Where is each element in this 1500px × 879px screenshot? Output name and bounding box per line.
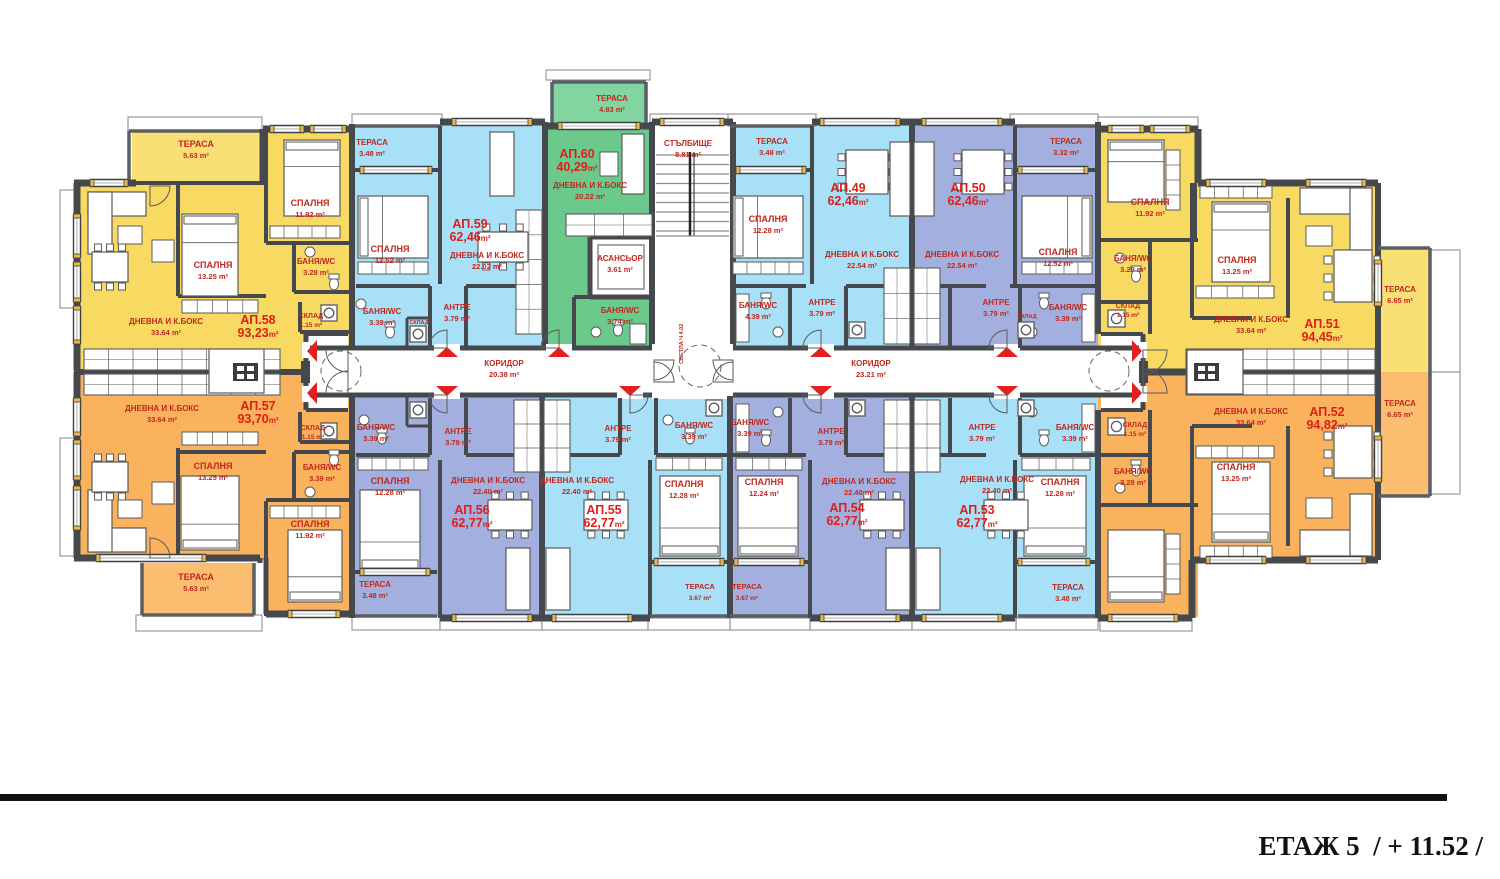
svg-text:3.79 m²: 3.79 m² [818,438,844,447]
svg-text:БАНЯ/WC: БАНЯ/WC [731,418,770,427]
svg-text:5.63 m²: 5.63 m² [183,584,209,593]
svg-text:СПАЛНЯ: СПАЛНЯ [194,461,233,471]
svg-text:ДНЕВНА И К.БОКС: ДНЕВНА И К.БОКС [553,181,627,190]
svg-text:12.24 m²: 12.24 m² [749,489,780,498]
svg-text:ДНЕВНА И К.БОКС: ДНЕВНА И К.БОКС [960,475,1034,484]
svg-text:3.28 m²: 3.28 m² [1120,265,1146,274]
svg-text:БАНЯ/WC: БАНЯ/WC [1049,303,1088,312]
svg-text:ДНЕВНА И К.БОКС: ДНЕВНА И К.БОКС [822,477,896,486]
svg-text:БАНЯ/WC: БАНЯ/WC [357,423,396,432]
svg-text:3.48 m²: 3.48 m² [359,149,385,158]
svg-text:ДНЕВНА И К.БОКС: ДНЕВНА И К.БОКС [540,476,614,485]
svg-text:ТЕРАСА: ТЕРАСА [356,138,388,147]
svg-text:33.64 m²: 33.64 m² [1236,326,1267,335]
svg-text:20.38 m²: 20.38 m² [489,370,520,379]
svg-text:ТЕРАСА: ТЕРАСА [1384,399,1416,408]
svg-text:3.39 m²: 3.39 m² [737,429,763,438]
svg-text:АНТРЕ: АНТРЕ [808,298,836,307]
svg-text:СКЛАД: СКЛАД [301,425,326,432]
svg-text:АП.51: АП.51 [1304,317,1339,331]
svg-text:АП.55: АП.55 [586,503,621,517]
svg-text:СВЕТЛА Ч 4.02: СВЕТЛА Ч 4.02 [679,324,685,364]
svg-text:3.39 m²: 3.39 m² [1062,434,1088,443]
svg-text:АНТРЕ: АНТРЕ [982,298,1010,307]
svg-text:3.28 m²: 3.28 m² [303,268,329,277]
svg-text:СПАЛНЯ: СПАЛНЯ [1039,247,1078,257]
svg-text:3.67 m²: 3.67 m² [736,595,759,602]
svg-text:20.22 m²: 20.22 m² [575,192,606,201]
svg-text:3.28 m²: 3.28 m² [1120,478,1146,487]
svg-text:4.39 m²: 4.39 m² [745,312,771,321]
svg-text:3.79 m²: 3.79 m² [445,438,471,447]
svg-text:ДНЕВНА И К.БОКС: ДНЕВНА И К.БОКС [925,250,999,259]
svg-text:11.92 m²: 11.92 m² [295,210,325,219]
svg-text:СПАЛНЯ: СПАЛНЯ [749,214,788,224]
svg-text:3.79 m²: 3.79 m² [969,434,995,443]
svg-text:11.92 m²: 11.92 m² [295,531,325,540]
svg-text:12.52 m²: 12.52 m² [1043,259,1074,268]
svg-text:3.48 m²: 3.48 m² [362,591,388,600]
svg-text:СПАЛНЯ: СПАЛНЯ [1041,477,1080,487]
svg-text:АП.60: АП.60 [559,147,594,161]
svg-text:ТЕРАСА: ТЕРАСА [685,582,715,591]
svg-text:СПАЛНЯ: СПАЛНЯ [745,477,784,487]
svg-text:22.40 m²: 22.40 m² [562,487,593,496]
svg-text:3.67 m²: 3.67 m² [689,595,712,602]
svg-text:22.40 m²: 22.40 m² [982,486,1013,495]
svg-text:12.52 m²: 12.52 m² [375,256,406,265]
svg-text:23.21 m²: 23.21 m² [856,370,887,379]
svg-text:22.40 m²: 22.40 m² [473,487,504,496]
svg-text:АНТРЕ: АНТРЕ [604,424,632,433]
svg-text:3.79 m²: 3.79 m² [809,309,835,318]
svg-text:СПАЛНЯ: СПАЛНЯ [665,479,704,489]
svg-text:13.25 m²: 13.25 m² [1221,474,1252,483]
svg-text:13.25 m²: 13.25 m² [198,272,229,281]
svg-text:8.81 m²: 8.81 m² [675,150,701,159]
svg-text:БАНЯ/WC: БАНЯ/WC [297,257,336,266]
svg-text:БАНЯ/WC: БАНЯ/WC [363,307,402,316]
svg-text:3.79 m²: 3.79 m² [983,309,1009,318]
svg-text:СПАЛНЯ: СПАЛНЯ [1217,462,1256,472]
svg-text:22.40 m²: 22.40 m² [844,488,875,497]
svg-text:АП.58: АП.58 [240,313,275,327]
svg-text:ДНЕВНА И К.БОКС: ДНЕВНА И К.БОКС [451,476,525,485]
svg-text:АП.54: АП.54 [829,501,864,515]
svg-text:12.28 m²: 12.28 m² [669,491,700,500]
svg-text:СКЛАД: СКЛАД [1123,422,1148,429]
svg-text:СКЛАД: СКЛАД [1017,314,1036,320]
svg-text:БАНЯ/WC: БАНЯ/WC [303,463,342,472]
svg-text:12.28 m²: 12.28 m² [1045,489,1076,498]
svg-text:3.32 m²: 3.32 m² [1053,148,1079,157]
svg-text:ТЕРАСА: ТЕРАСА [178,139,214,149]
svg-text:ТЕРАСА: ТЕРАСА [732,582,762,591]
svg-text:33.64 m²: 33.64 m² [147,415,178,424]
svg-text:СПАЛНЯ: СПАЛНЯ [1131,197,1170,207]
svg-text:3.39 m²: 3.39 m² [1055,314,1081,323]
svg-text:3.48 m²: 3.48 m² [759,148,785,157]
svg-text:БАНЯ/WC: БАНЯ/WC [1114,467,1153,476]
svg-text:АП.53: АП.53 [959,503,994,517]
svg-text:СТЪЛБИЩЕ: СТЪЛБИЩЕ [664,139,713,148]
svg-text:СКЛАД: СКЛАД [299,313,324,320]
svg-text:СПАЛНЯ: СПАЛНЯ [1218,255,1257,265]
svg-text:АНТРЕ: АНТРЕ [444,427,472,436]
svg-text:5.63 m²: 5.63 m² [183,151,209,160]
svg-text:КОРИДОР: КОРИДОР [851,359,891,368]
svg-text:БАНЯ/WC: БАНЯ/WC [601,306,640,315]
svg-text:22.02 m²: 22.02 m² [472,262,503,271]
svg-text:ТЕРАСА: ТЕРАСА [596,94,628,103]
svg-text:СКЛАД: СКЛАД [1116,303,1141,310]
svg-text:ТЕРАСА: ТЕРАСА [1050,137,1082,146]
svg-text:22.54 m²: 22.54 m² [947,261,978,270]
svg-text:ДНЕВНА И К.БОКС: ДНЕВНА И К.БОКС [129,317,203,326]
svg-text:6.65 m²: 6.65 m² [1387,296,1413,305]
svg-text:33.64 m²: 33.64 m² [1236,418,1267,427]
svg-text:ТЕРАСА: ТЕРАСА [1384,285,1416,294]
svg-text:3.61 m²: 3.61 m² [607,265,633,274]
svg-text:11.92 m²: 11.92 m² [1135,209,1165,218]
svg-text:12.28 m²: 12.28 m² [753,226,784,235]
svg-text:СКЛАД: СКЛАД [409,320,428,326]
svg-text:3.79 m²: 3.79 m² [605,435,631,444]
svg-text:ДНЕВНА И К.БОКС: ДНЕВНА И К.БОКС [125,404,199,413]
svg-text:3.48 m²: 3.48 m² [1055,594,1081,603]
svg-text:БАНЯ/WC: БАНЯ/WC [1056,423,1095,432]
svg-text:АНТРЕ: АНТРЕ [443,303,471,312]
svg-text:СПАЛНЯ: СПАЛНЯ [291,198,330,208]
svg-text:1.15 m²: 1.15 m² [1124,431,1147,438]
svg-text:АСАНСЬОР: АСАНСЬОР [597,254,643,263]
svg-text:ЕТАЖ 5 / + 11.52 /: ЕТАЖ 5 / + 11.52 / [1258,831,1483,861]
svg-text:КОРИДОР: КОРИДОР [484,359,524,368]
svg-text:СПАЛНЯ: СПАЛНЯ [194,260,233,270]
svg-text:ТЕРАСА: ТЕРАСА [178,572,214,582]
svg-text:3.74 m²: 3.74 m² [607,317,633,326]
svg-text:СПАЛНЯ: СПАЛНЯ [371,476,410,486]
svg-text:ДНЕВНА И К.БОКС: ДНЕВНА И К.БОКС [825,250,899,259]
svg-text:АП.57: АП.57 [240,399,275,413]
svg-text:4.83 m²: 4.83 m² [599,105,625,114]
svg-text:СПАЛНЯ: СПАЛНЯ [291,519,330,529]
svg-text:1.15 m²: 1.15 m² [302,434,325,441]
svg-text:13.25 m²: 13.25 m² [1222,267,1253,276]
svg-text:БАНЯ/WC: БАНЯ/WC [675,421,714,430]
svg-text:ДНЕВНА И К.БОКС: ДНЕВНА И К.БОКС [1214,315,1288,324]
svg-text:33.64 m²: 33.64 m² [151,328,182,337]
svg-text:АП.52: АП.52 [1309,405,1344,419]
svg-text:БАНЯ/WC: БАНЯ/WC [1114,254,1153,263]
svg-text:ДНЕВНА И К.БОКС: ДНЕВНА И К.БОКС [1214,407,1288,416]
svg-text:22.54 m²: 22.54 m² [847,261,878,270]
svg-text:АП.59: АП.59 [452,217,487,231]
svg-text:АП.49: АП.49 [830,181,865,195]
svg-text:3.39 m²: 3.39 m² [681,432,707,441]
svg-text:1.15 m²: 1.15 m² [1117,312,1140,319]
svg-text:ТЕРАСА: ТЕРАСА [359,580,391,589]
svg-text:3.79 m²: 3.79 m² [444,314,470,323]
svg-text:3.39 m²: 3.39 m² [369,318,395,327]
svg-text:3.39 m²: 3.39 m² [309,474,335,483]
svg-text:3.39 m²: 3.39 m² [363,434,389,443]
svg-text:ДНЕВНА И К.БОКС: ДНЕВНА И К.БОКС [450,251,524,260]
svg-text:6.65 m²: 6.65 m² [1387,410,1413,419]
svg-text:АНТРЕ: АНТРЕ [968,423,996,432]
svg-text:12.28 m²: 12.28 m² [375,488,406,497]
svg-text:АНТРЕ: АНТРЕ [817,427,845,436]
svg-text:13.25 m²: 13.25 m² [198,473,229,482]
svg-text:АП.50: АП.50 [950,181,985,195]
svg-text:ТЕРАСА: ТЕРАСА [756,137,788,146]
svg-text:АП.56: АП.56 [454,503,489,517]
svg-text:ТЕРАСА: ТЕРАСА [1052,583,1084,592]
svg-text:1.15 m²: 1.15 m² [300,322,323,329]
svg-text:СПАЛНЯ: СПАЛНЯ [371,244,410,254]
svg-text:БАНЯ/WC: БАНЯ/WC [739,301,778,310]
